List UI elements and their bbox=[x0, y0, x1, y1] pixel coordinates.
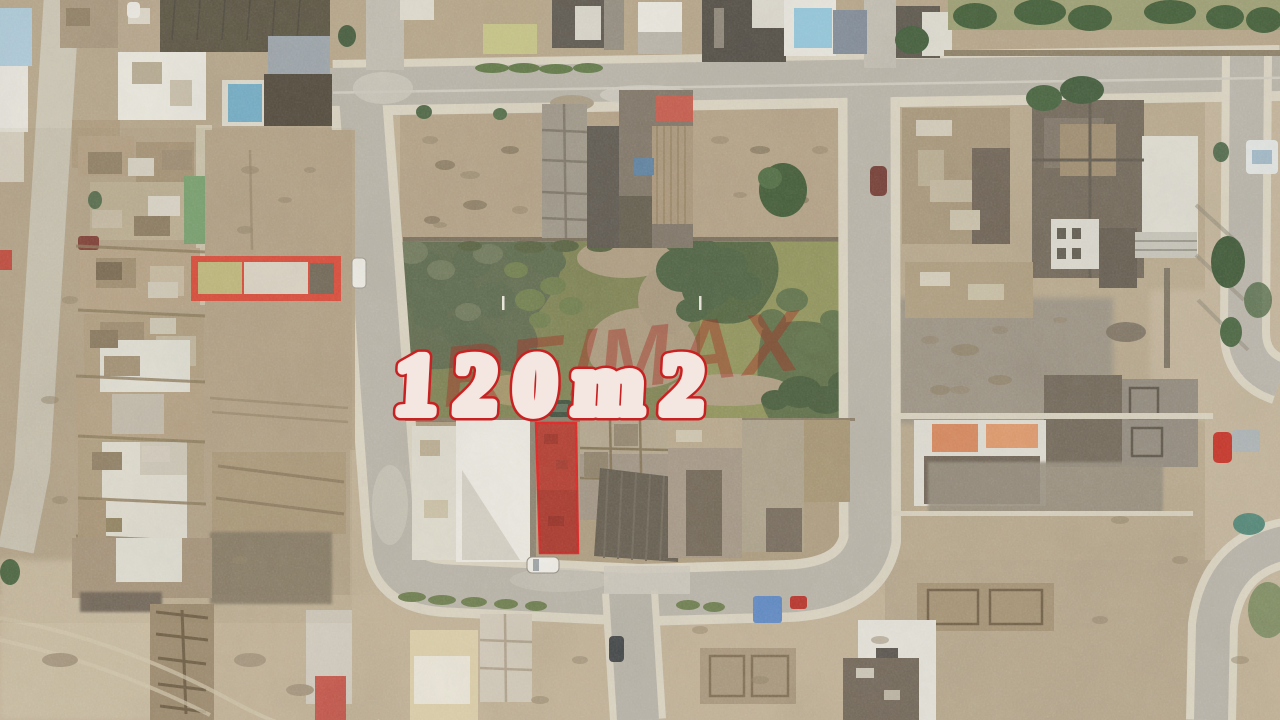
svg-text:120m2: 120m2 bbox=[392, 338, 723, 432]
